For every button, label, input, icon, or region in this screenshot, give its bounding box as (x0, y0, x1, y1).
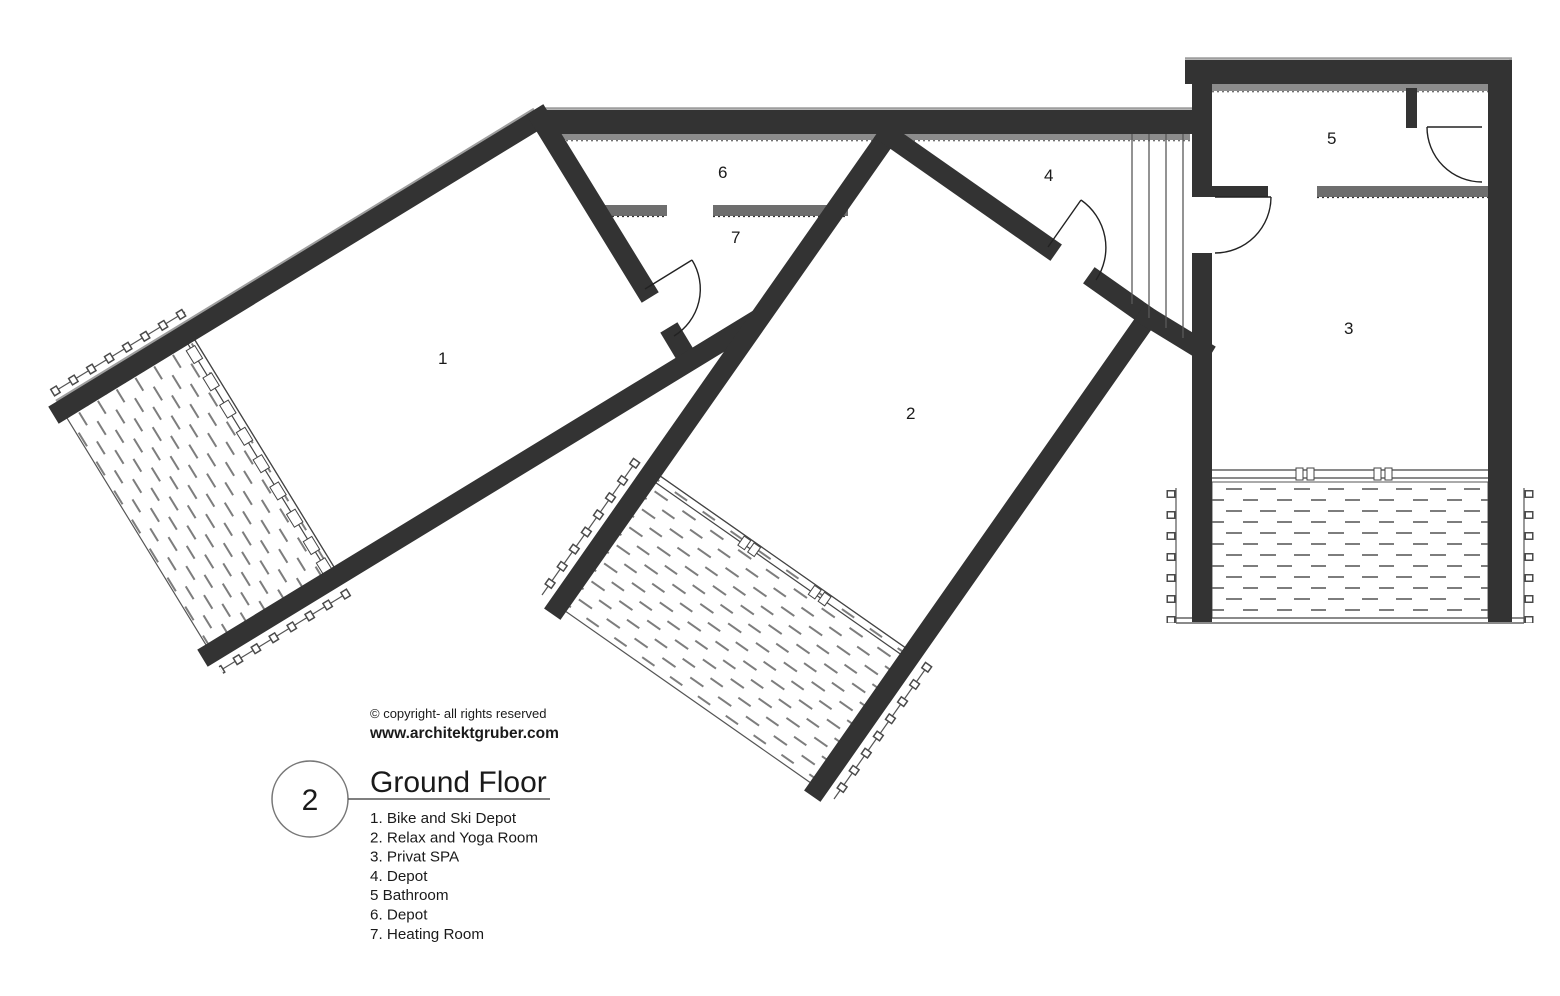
floor-plan-drawing: 1 2 3 4 5 6 7 © copyright- all rights re… (0, 0, 1560, 996)
copyright-line: © copyright- all rights reserved (370, 706, 546, 721)
drawing-title: Ground Floor (370, 766, 547, 799)
room-label-3: 3 (1344, 319, 1353, 338)
legend-item-1: 1. Bike and Ski Depot (370, 810, 517, 827)
legend-item-5: 5 Bathroom (370, 887, 449, 904)
room-label-2: 2 (906, 404, 915, 423)
room-label-5: 5 (1327, 129, 1336, 148)
room-label-1: 1 (438, 349, 447, 368)
website-text: www.architektgruber.com (369, 725, 559, 742)
legend-item-2: 2. Relax and Yoga Room (370, 829, 538, 846)
legend-item-7: 7. Heating Room (370, 926, 484, 943)
legend-item-6: 6. Depot (370, 907, 428, 924)
room-label-6: 6 (718, 163, 727, 182)
sheet-number: 2 (302, 784, 319, 817)
room-label-7: 7 (731, 228, 740, 247)
floor-plan-sheet: 1 2 3 4 5 6 7 © copyright- all rights re… (0, 0, 1560, 996)
legend: Ground Floor 1. Bike and Ski Depot 2. Re… (370, 766, 547, 943)
window-band-room3 (1212, 468, 1488, 480)
legend-item-3: 3. Privat SPA (370, 849, 460, 866)
half-wall-partition (597, 186, 1488, 217)
room-label-4: 4 (1044, 166, 1053, 185)
deck-terrace-right (1176, 482, 1524, 623)
copyright: © copyright- all rights reserved www.arc… (369, 706, 559, 742)
legend-item-4: 4. Depot (370, 868, 428, 885)
